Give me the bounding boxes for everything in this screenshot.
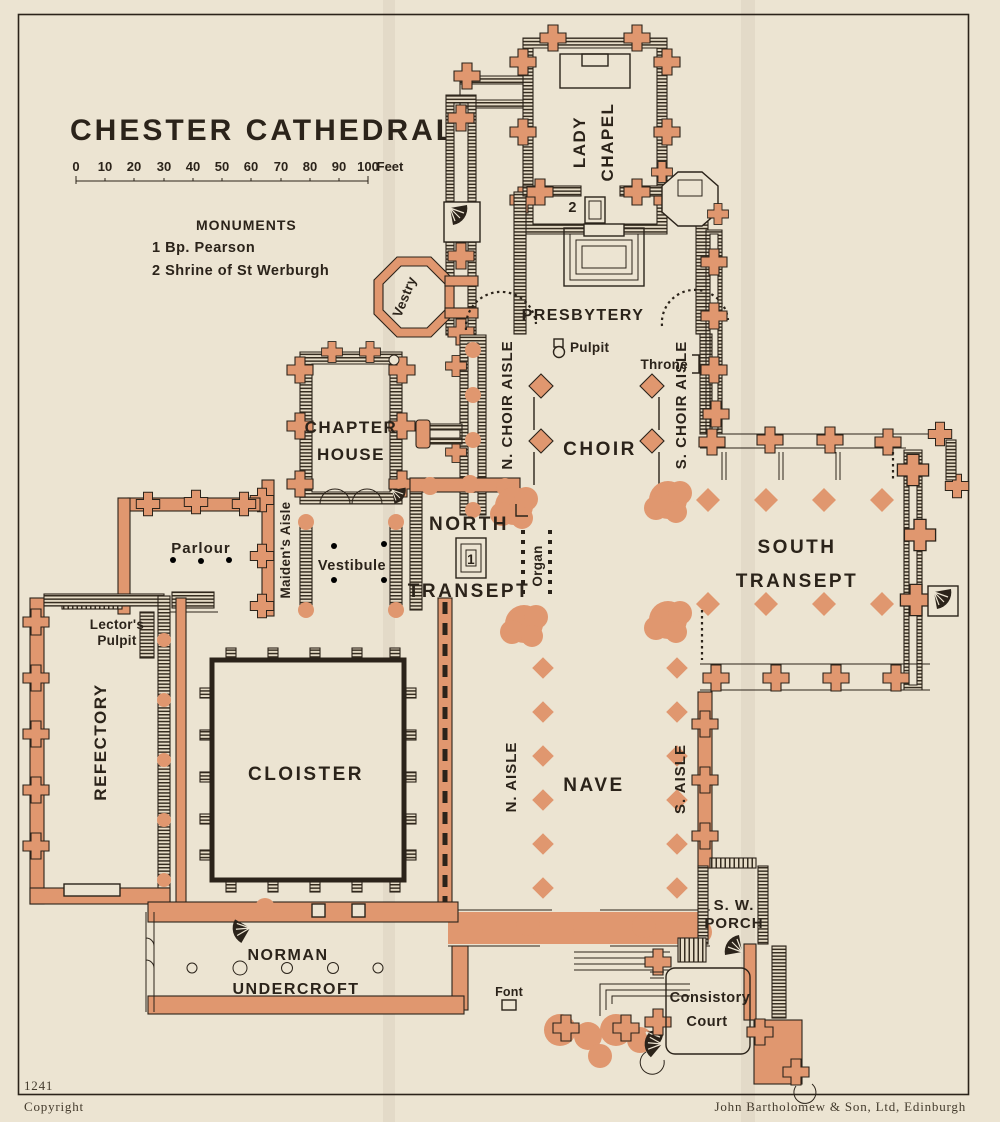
monuments-heading: MONUMENTS xyxy=(196,217,297,233)
label-lectors-pulpit-line2: Pulpit xyxy=(97,633,136,648)
scale-tick-label: 60 xyxy=(244,159,258,174)
label-vestibule: Vestibule xyxy=(318,558,386,574)
scale-tick-label: 100 xyxy=(357,159,379,174)
label-maidens-aisle: Maiden's Aisle xyxy=(278,501,293,598)
scale-tick-label: 90 xyxy=(332,159,346,174)
steps-icon xyxy=(678,938,706,962)
scale-tick-label: 50 xyxy=(215,159,229,174)
label-font: Font xyxy=(495,985,524,999)
monument-item-1: 1 Bp. Pearson xyxy=(152,240,255,256)
label-n-aisle: N. AISLE xyxy=(503,742,520,813)
label-south-transept-line1: SOUTH xyxy=(758,537,837,558)
label-lady-chapel-line1: LADY xyxy=(570,116,589,168)
label-refectory: REFECTORY xyxy=(91,683,110,800)
copyright-note: Copyright xyxy=(24,1099,84,1114)
scale-tick-label: 70 xyxy=(274,159,288,174)
publisher-imprint: John Bartholomew & Son, Ltd, Edinburgh xyxy=(714,1099,966,1114)
label-s-choir-aisle: S. CHOIR AISLE xyxy=(673,341,690,469)
marker-monument-1: 1 xyxy=(467,552,475,567)
steps-icon xyxy=(710,858,756,868)
marker-monument-2: 2 xyxy=(568,200,577,216)
label-s-aisle: S. AISLE xyxy=(672,744,689,814)
label-cloister: CLOISTER xyxy=(248,764,364,785)
scale-unit: Feet xyxy=(377,159,404,174)
label-south-transept-line2: TRANSEPT xyxy=(736,571,858,592)
page-title: CHESTER CATHEDRAL xyxy=(70,114,457,147)
label-lectors-pulpit-line1: Lector's xyxy=(90,617,144,632)
scale-tick-label: 80 xyxy=(303,159,317,174)
scale-tick-label: 0 xyxy=(72,159,79,174)
label-presbytery: PRESBYTERY xyxy=(522,307,645,324)
label-consistory-line2: Court xyxy=(686,1014,727,1030)
label-consistory-line1: Consistory xyxy=(670,990,751,1006)
label-nave: NAVE xyxy=(563,775,624,796)
monument-item-2: 2 Shrine of St Werburgh xyxy=(152,263,329,279)
pulpit-icon xyxy=(554,339,563,347)
label-sw-porch-line2: PORCH xyxy=(704,915,763,932)
label-undercroft-line1: NORMAN xyxy=(248,947,329,964)
label-north-transept-line2: TRANSEPT xyxy=(408,581,530,602)
map-sheet: CHESTER CATHEDRAL 0 10 20 30 40 50 60 70… xyxy=(0,0,1000,1122)
label-parlour: Parlour xyxy=(171,540,231,557)
label-undercroft-line2: UNDERCROFT xyxy=(233,981,360,998)
label-chapter-house-line1: CHAPTER xyxy=(305,418,398,437)
scale-tick-label: 20 xyxy=(127,159,141,174)
paper-background xyxy=(0,0,1000,1122)
label-organ: Organ xyxy=(530,545,545,586)
label-north-transept-line1: NORTH xyxy=(429,514,509,535)
label-sw-porch-line1: S. W. xyxy=(714,897,755,914)
scale-tick-label: 40 xyxy=(186,159,200,174)
label-pulpit: Pulpit xyxy=(570,340,609,355)
label-lady-chapel-line2: CHAPEL xyxy=(598,103,617,182)
plate-number: 1241 xyxy=(24,1078,53,1093)
label-n-choir-aisle: N. CHOIR AISLE xyxy=(499,340,516,469)
label-choir: CHOIR xyxy=(563,439,637,460)
scale-tick-label: 30 xyxy=(157,159,171,174)
label-chapter-house-line2: HOUSE xyxy=(317,445,385,464)
cathedral-floor-plan: CHESTER CATHEDRAL 0 10 20 30 40 50 60 70… xyxy=(0,0,1000,1122)
scale-tick-label: 10 xyxy=(98,159,112,174)
